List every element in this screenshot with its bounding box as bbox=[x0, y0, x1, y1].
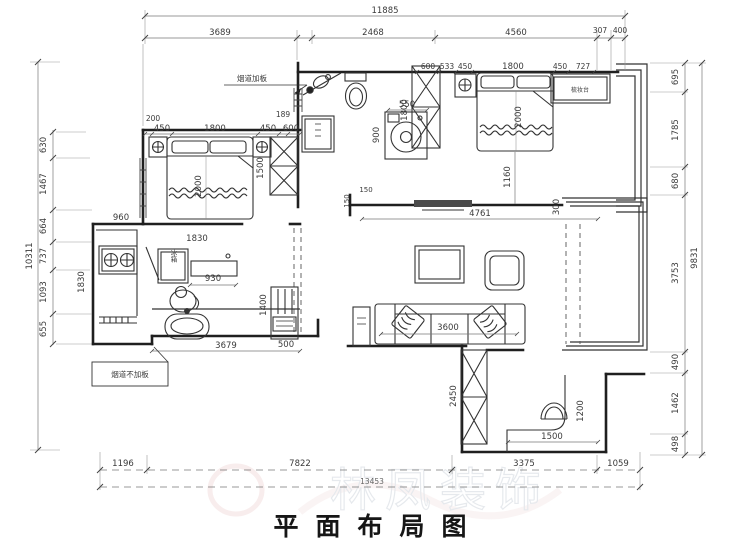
dim-bed1-2000: 2000 bbox=[194, 175, 204, 197]
dim-left-3: 664 bbox=[39, 218, 49, 234]
wardrobe1 bbox=[270, 137, 298, 195]
bath2-cabinet bbox=[302, 116, 334, 152]
dim-right-total: 9831 bbox=[690, 247, 700, 269]
dim-bed1-450b: 450 bbox=[260, 124, 276, 134]
dim-bed2-450b: 450 bbox=[553, 62, 568, 71]
dim-right-3: 680 bbox=[671, 173, 681, 189]
dim-top-total: 11885 bbox=[371, 6, 398, 16]
bed1 bbox=[167, 137, 253, 219]
kitchen-table bbox=[191, 254, 237, 276]
dim-living-300: 300 bbox=[552, 199, 562, 215]
fridge-label: 冰箱 bbox=[169, 248, 177, 263]
dim-left-4: 737 bbox=[39, 248, 49, 264]
dim-bath2-900: 900 bbox=[372, 127, 382, 143]
shaft-column bbox=[461, 350, 487, 444]
dim-bed2-1800: 1800 bbox=[502, 62, 524, 72]
toilet2 bbox=[541, 403, 567, 419]
dim-left-2: 1467 bbox=[39, 173, 49, 195]
dim-bottom-2: 7822 bbox=[289, 459, 311, 469]
floor-plan-page: 林凤装饰 bbox=[0, 0, 740, 548]
dim-bed2-727: 727 bbox=[576, 62, 591, 71]
dim-bed2-600: 600 bbox=[421, 62, 436, 71]
dim-bed1-450a: 450 bbox=[154, 124, 170, 134]
dim-bed1-1800: 1800 bbox=[204, 124, 226, 134]
nightstand bbox=[149, 137, 167, 157]
dim-top-5: 400 bbox=[613, 26, 628, 35]
nightstand bbox=[455, 74, 476, 97]
dim-room2-2450: 2450 bbox=[449, 385, 459, 407]
dim-bed1-1500: 1500 bbox=[256, 157, 266, 179]
dim-bottom-1: 1196 bbox=[112, 459, 134, 469]
dressing-table: 梳妆台 bbox=[551, 74, 610, 103]
dim-bath1-500: 500 bbox=[278, 340, 294, 350]
side-table bbox=[485, 251, 524, 290]
fridge: 冰箱 bbox=[158, 248, 188, 283]
dim-room2-1500: 1500 bbox=[541, 432, 563, 442]
dim-right-4: 3753 bbox=[671, 262, 681, 284]
dim-left-1: 630 bbox=[39, 137, 49, 153]
dim-kitchen-1830h: 1830 bbox=[186, 234, 208, 244]
drawing-title: 平面布局图 bbox=[0, 507, 740, 543]
nightstand bbox=[253, 137, 271, 157]
dim-bed1-200: 200 bbox=[146, 114, 161, 123]
wardrobe2 bbox=[412, 66, 440, 148]
tv bbox=[414, 200, 472, 210]
floor-plan-canvas: 林凤装饰 bbox=[0, 0, 740, 548]
flue-add-text: 烟道加板 bbox=[237, 73, 267, 83]
sofa-side-cabinet bbox=[353, 307, 370, 346]
flue-none-note: 烟道不加板 bbox=[92, 347, 168, 386]
dim-living-4761: 4761 bbox=[469, 209, 491, 219]
dim-living-150a: 150 bbox=[343, 194, 351, 207]
dim-top-3: 4560 bbox=[505, 28, 527, 38]
dressing-table-label: 梳妆台 bbox=[571, 86, 589, 94]
kitchen-door bbox=[146, 247, 159, 280]
dim-left-total: 10311 bbox=[25, 242, 35, 269]
dim-top-1: 3689 bbox=[209, 28, 231, 38]
coffee-table bbox=[415, 246, 464, 283]
dim-bed2-450a: 450 bbox=[458, 62, 473, 71]
dim-bed2-2000: 2000 bbox=[514, 106, 524, 128]
dim-room2-1200: 1200 bbox=[576, 400, 586, 422]
dim-bath1-1400: 1400 bbox=[259, 294, 269, 316]
dim-living-3600: 3600 bbox=[437, 323, 459, 333]
dim-living-150b: 150 bbox=[359, 186, 372, 194]
dim-bed2-1160: 1160 bbox=[503, 166, 513, 188]
dim-right-6: 1462 bbox=[671, 392, 681, 414]
dim-bed1-189: 189 bbox=[276, 110, 291, 119]
furniture: 冰箱 bbox=[96, 66, 610, 452]
dim-right-7: 498 bbox=[671, 436, 681, 452]
dim-kitchen-960: 960 bbox=[113, 213, 129, 223]
bay-windows bbox=[562, 64, 647, 350]
dim-bottom-total: 13453 bbox=[360, 477, 384, 486]
extension-lines bbox=[30, 10, 706, 490]
dimension-lines bbox=[38, 16, 702, 455]
dim-right-5: 490 bbox=[671, 354, 681, 370]
dim-bed2-1800v: 1800 bbox=[400, 99, 410, 121]
flue-add-note: 烟道加板 bbox=[224, 73, 307, 95]
dim-left-5: 1093 bbox=[39, 281, 49, 303]
dim-kitchen-1830v: 1830 bbox=[77, 271, 87, 293]
dim-right-1: 695 bbox=[671, 69, 681, 85]
corner-sink bbox=[303, 73, 341, 95]
dim-top-2: 2468 bbox=[362, 28, 384, 38]
kitchen-counter bbox=[96, 230, 137, 323]
dim-bath1-3679: 3679 bbox=[215, 341, 237, 351]
toilet bbox=[345, 73, 367, 109]
dim-top-4: 307 bbox=[593, 26, 608, 35]
dim-bottom-4: 1059 bbox=[607, 459, 629, 469]
dimension-ticks bbox=[35, 13, 705, 490]
dim-right-2: 1785 bbox=[671, 119, 681, 141]
dim-left-6: 655 bbox=[39, 321, 49, 337]
dim-bed1-600: 600 bbox=[283, 124, 299, 134]
flue-none-text: 烟道不加板 bbox=[111, 369, 149, 379]
dim-bed2-533: 533 bbox=[440, 62, 455, 71]
dim-kitchen-930: 930 bbox=[205, 274, 221, 284]
dim-bottom-3: 3375 bbox=[513, 459, 535, 469]
person-figure bbox=[170, 287, 199, 313]
